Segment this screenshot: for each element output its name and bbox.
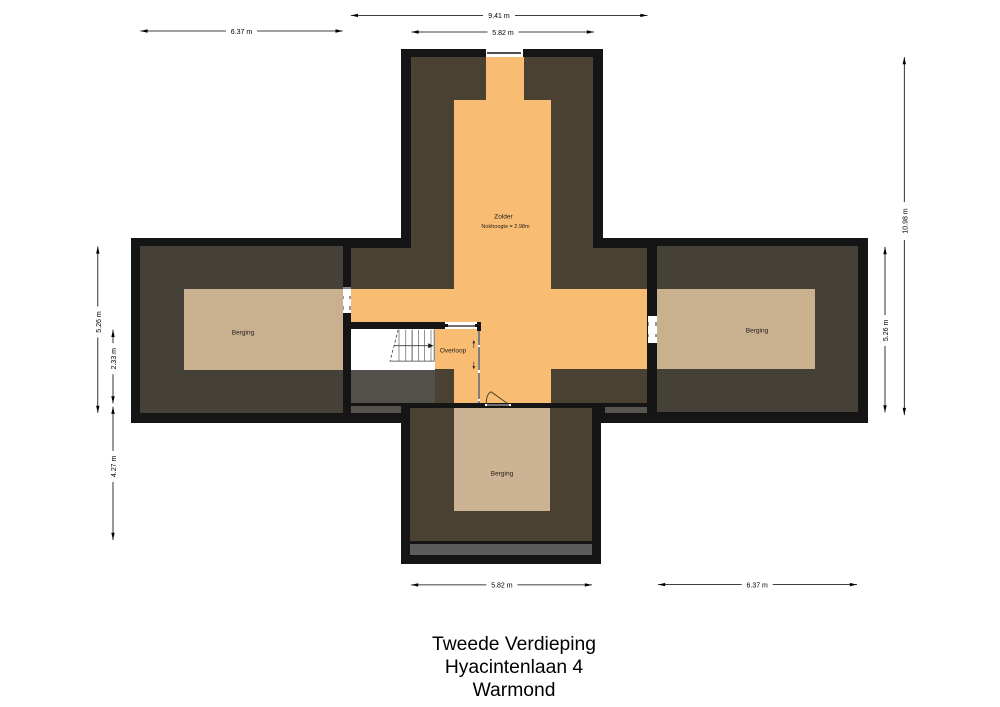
svg-text:10.98 m: 10.98 m: [902, 208, 909, 233]
svg-text:4.27 m: 4.27 m: [111, 456, 118, 478]
svg-text:5.26 m: 5.26 m: [96, 311, 103, 333]
svg-text:5.26 m: 5.26 m: [883, 320, 890, 342]
svg-text:6.37 m: 6.37 m: [231, 29, 253, 36]
svg-text:9.41 m: 9.41 m: [488, 13, 510, 20]
svg-text:5.82 m: 5.82 m: [492, 30, 514, 37]
svg-text:6.37 m: 6.37 m: [746, 582, 768, 589]
svg-text:5.82 m: 5.82 m: [491, 583, 513, 590]
svg-text:2.33 m: 2.33 m: [111, 348, 118, 370]
